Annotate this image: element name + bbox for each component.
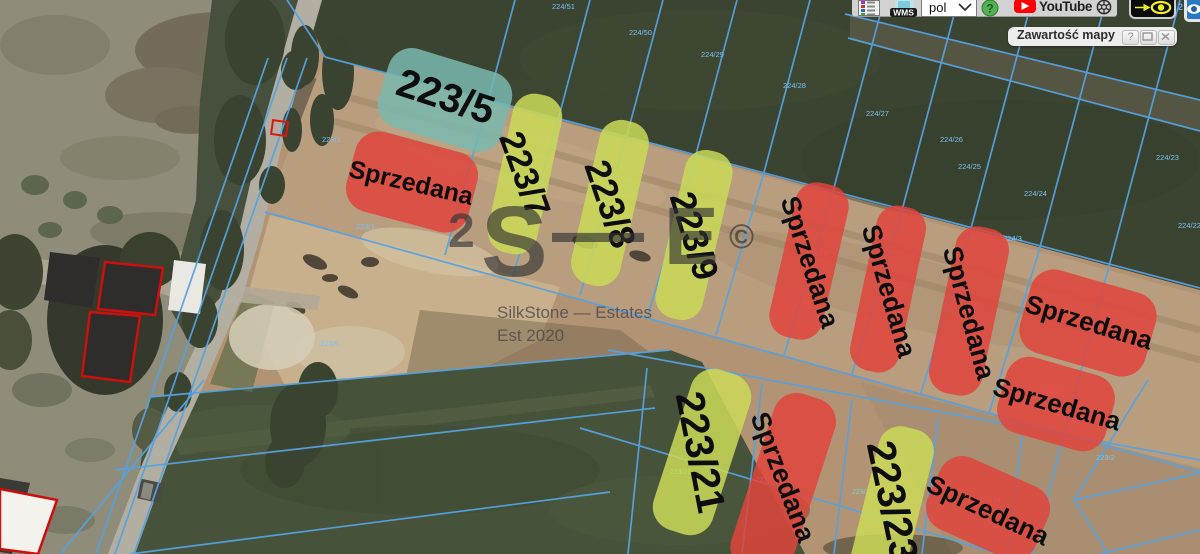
svg-text:WMS: WMS [893,8,914,18]
svg-text:224/22: 224/22 [1178,221,1200,230]
svg-text:?: ? [986,2,993,16]
svg-text:223/2: 223/2 [1096,453,1115,462]
svg-text:2: 2 [448,205,475,258]
svg-text:224/29: 224/29 [701,50,724,59]
svg-text:224/25: 224/25 [958,162,981,171]
svg-text:224/51: 224/51 [552,2,575,11]
svg-text:©: © [729,218,754,256]
svg-text:224/27: 224/27 [866,109,889,118]
svg-text:—: — [552,180,644,282]
svg-text:Est 2020: Est 2020 [497,326,564,345]
svg-text:S: S [481,186,548,298]
svg-text:223/1: 223/1 [356,222,375,231]
svg-text:YouTube: YouTube [1039,0,1093,14]
svg-text:224/24: 224/24 [1024,189,1047,198]
svg-text:224/50: 224/50 [629,28,652,37]
svg-text:224/23: 224/23 [1156,153,1179,162]
svg-text:223/6: 223/6 [320,339,339,348]
svg-text:E: E [664,191,719,282]
svg-text:pol: pol [929,0,946,15]
svg-text:224/26: 224/26 [940,135,963,144]
svg-text:224/28: 224/28 [783,81,806,90]
svg-text:SilkStone — Estates: SilkStone — Estates [497,303,652,322]
svg-text:223/1: 223/1 [322,135,341,144]
